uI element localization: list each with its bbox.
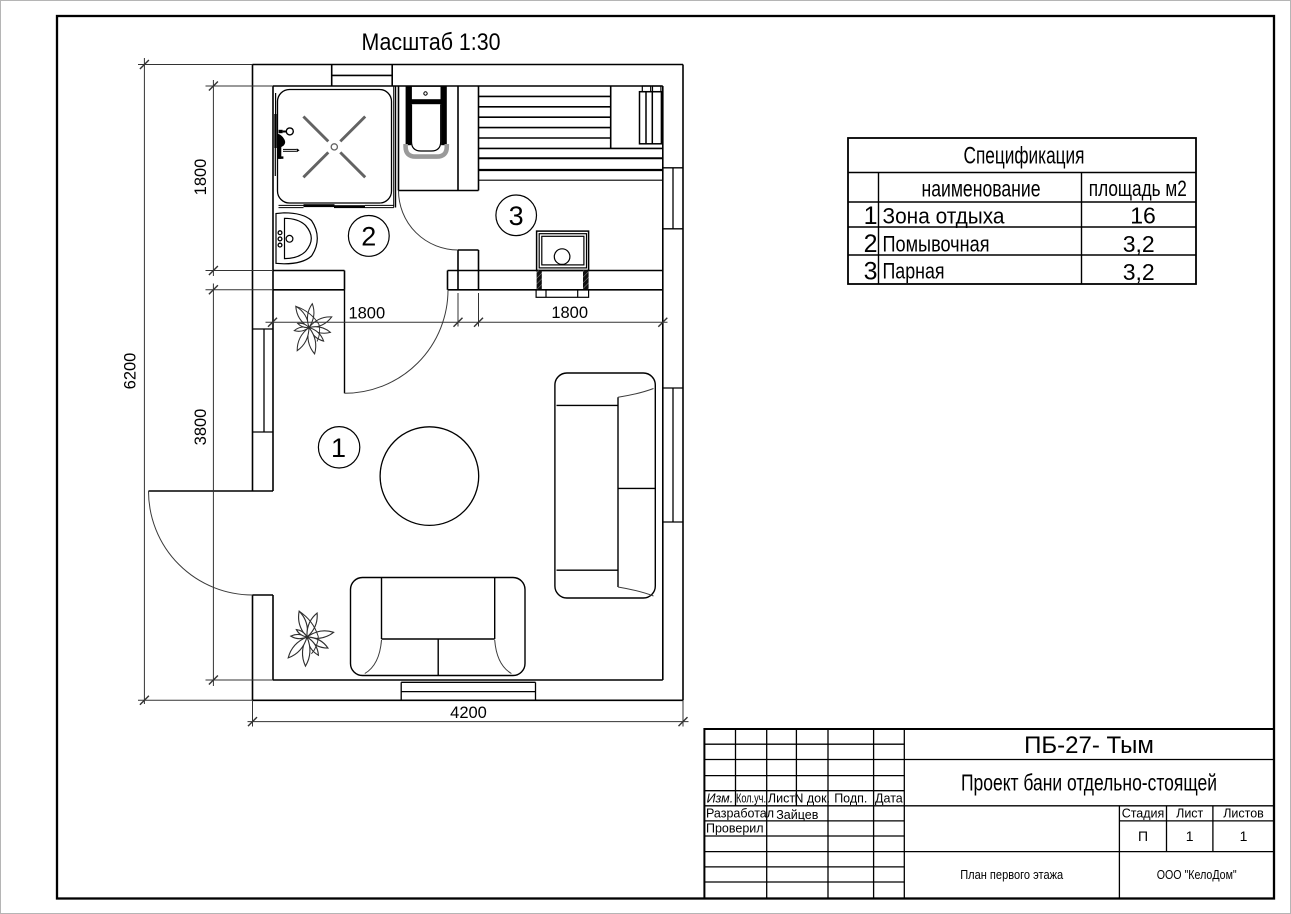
svg-text:1800: 1800 (192, 159, 210, 196)
svg-text:План первого этажа: План первого этажа (960, 868, 1063, 882)
svg-text:Кол.уч.: Кол.уч. (736, 792, 766, 806)
svg-text:N док.: N док. (794, 792, 830, 806)
svg-text:3: 3 (864, 258, 878, 286)
svg-text:площадь м2: площадь м2 (1089, 176, 1187, 201)
svg-text:Помывочная: Помывочная (883, 232, 990, 257)
svg-text:Зона отдыха: Зона отдыха (883, 204, 1005, 229)
svg-text:1: 1 (1186, 828, 1194, 844)
svg-text:Масштаб 1:30: Масштаб 1:30 (362, 29, 501, 56)
svg-text:3: 3 (509, 201, 524, 231)
svg-text:4200: 4200 (450, 704, 487, 722)
svg-text:Парная: Парная (883, 259, 945, 284)
svg-text:Изм.: Изм. (707, 792, 734, 806)
svg-text:Лист: Лист (768, 792, 795, 806)
svg-text:16: 16 (1130, 203, 1156, 229)
svg-text:1800: 1800 (551, 304, 588, 322)
svg-text:Дата: Дата (875, 792, 903, 806)
svg-text:6200: 6200 (122, 353, 140, 390)
svg-text:Разработал: Разработал (706, 807, 774, 821)
svg-text:Подп.: Подп. (834, 792, 867, 806)
svg-text:2: 2 (864, 230, 878, 258)
svg-text:3800: 3800 (192, 409, 210, 446)
svg-text:3,2: 3,2 (1123, 231, 1155, 257)
svg-text:Спецификация: Спецификация (964, 143, 1085, 170)
svg-text:Проект бани отдельно-стоящей: Проект бани отдельно-стоящей (961, 770, 1217, 796)
svg-text:2: 2 (361, 222, 376, 252)
svg-text:наименование: наименование (922, 176, 1041, 202)
svg-text:3,2: 3,2 (1123, 259, 1155, 285)
svg-text:ПБ-27- Тым: ПБ-27- Тым (1024, 732, 1154, 759)
svg-text:Проверил: Проверил (706, 822, 764, 836)
svg-text:Лист: Лист (1176, 807, 1203, 821)
svg-text:1: 1 (864, 202, 878, 230)
svg-text:Листов: Листов (1223, 807, 1264, 821)
svg-text:Стадия: Стадия (1122, 807, 1165, 821)
svg-text:1800: 1800 (348, 305, 385, 323)
svg-text:ООО "КелоДом": ООО "КелоДом" (1157, 868, 1237, 882)
svg-text:1: 1 (1240, 828, 1248, 844)
svg-text:П: П (1138, 828, 1148, 844)
svg-text:1: 1 (331, 433, 346, 463)
svg-text:Зайцев: Зайцев (776, 808, 818, 822)
